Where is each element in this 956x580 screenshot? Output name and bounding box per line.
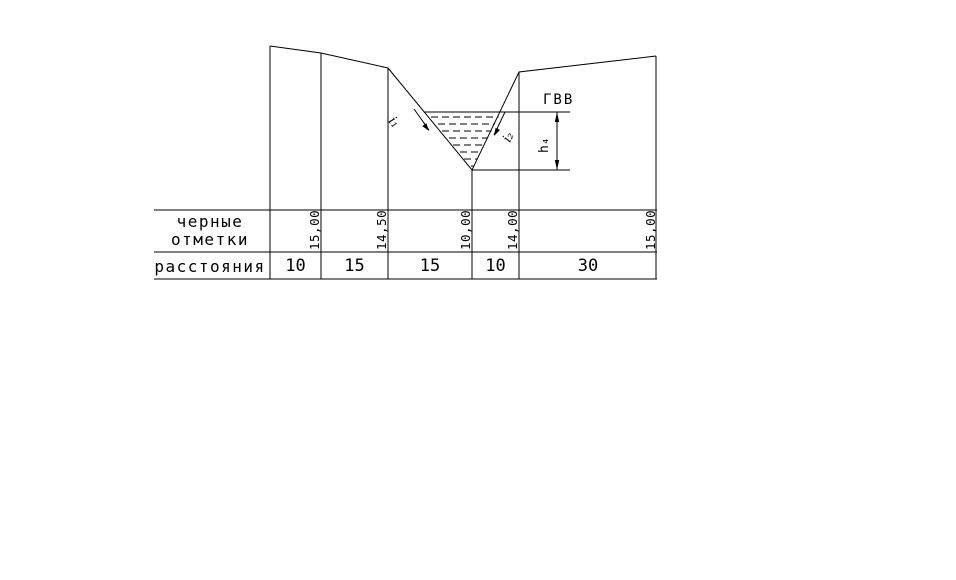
distance-value: 30 <box>519 256 657 276</box>
dimension-arrow-down-icon <box>555 160 559 170</box>
depth-label: h₄ <box>538 137 551 153</box>
elevation-value: 10,00 <box>459 210 472 250</box>
distance-value: 15 <box>388 256 472 276</box>
elevation-value: 14,00 <box>506 210 519 250</box>
elevations-row-label-line1: черные <box>158 212 262 231</box>
dimension-arrow-up-icon <box>555 112 559 122</box>
cross-section-drawing <box>0 0 956 580</box>
terrain-profile-line <box>270 46 656 170</box>
distances-row-label: расстояния <box>152 257 268 276</box>
elevations-row-label-line2: отметки <box>158 230 262 249</box>
distance-value: 10 <box>270 256 321 276</box>
distance-value: 10 <box>472 256 519 276</box>
elevation-value: 15,00 <box>644 210 657 250</box>
drawing-canvas: ГВВ h₄ i₁ i₂ черные отметки расстояния 1… <box>0 0 956 580</box>
elevation-value: 15,00 <box>308 210 321 250</box>
depth-dimension-line <box>555 112 559 170</box>
distance-value: 15 <box>321 256 388 276</box>
water-hatching <box>416 117 506 166</box>
gvv-label: ГВВ <box>543 92 574 108</box>
elevation-value: 14,50 <box>375 210 388 250</box>
